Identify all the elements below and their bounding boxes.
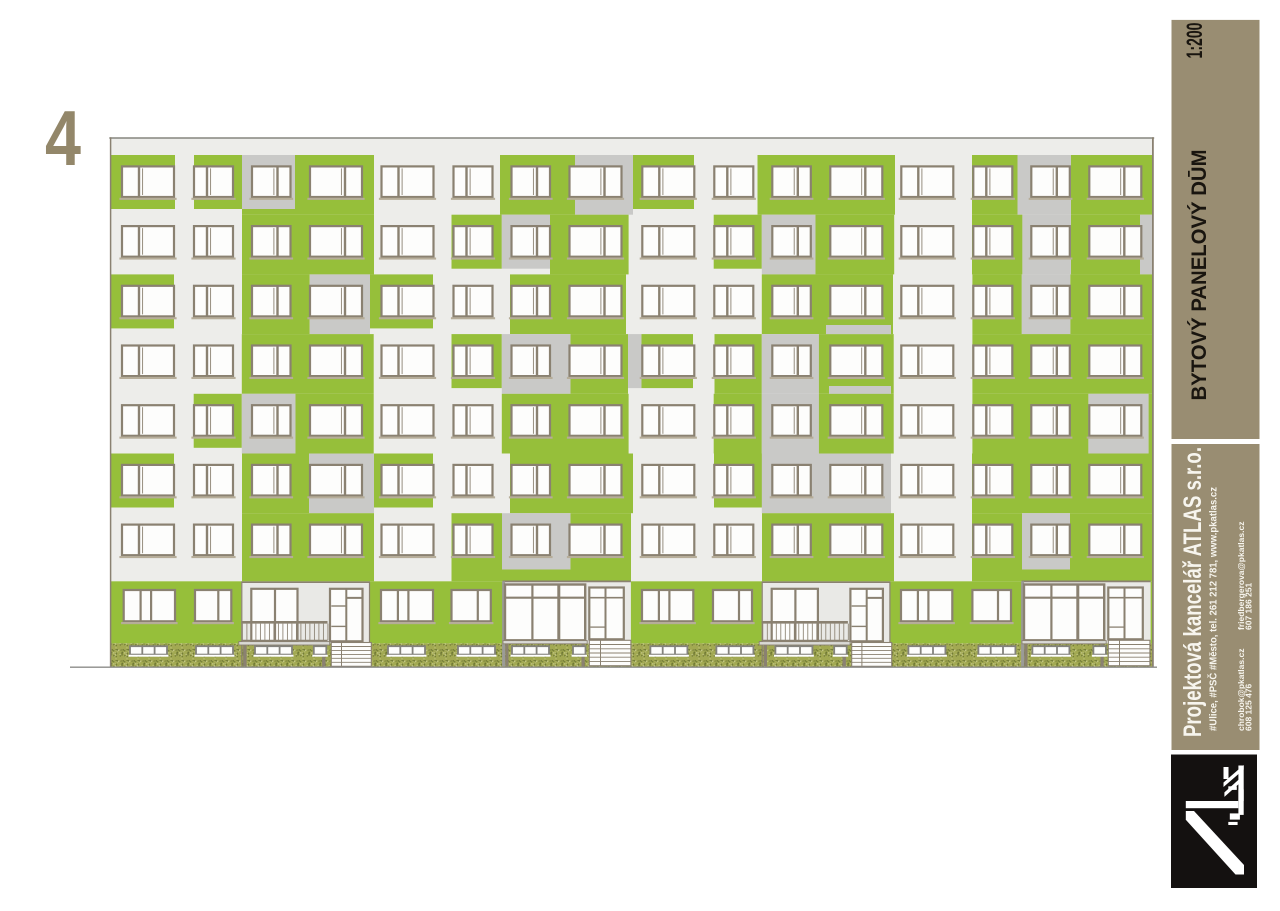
svg-text:#Ulice, #PSČ #Město, tel. 26: #Ulice, #PSČ #Město, tel. 261 212 781, w… (1207, 487, 1220, 731)
svg-text:607 186 251: 607 186 251 (1244, 582, 1254, 630)
svg-text:Projektová kancelář ATLAS s.r.: Projektová kancelář ATLAS s.r.o. (1179, 447, 1207, 737)
svg-text:1:200: 1:200 (1182, 23, 1207, 59)
svg-text:BYTOVÝ PANELOVÝ DŪM: BYTOVÝ PANELOVÝ DŪM (1187, 150, 1211, 401)
svg-text:4: 4 (45, 94, 81, 182)
svg-text:608 125 476: 608 125 476 (1244, 683, 1254, 731)
